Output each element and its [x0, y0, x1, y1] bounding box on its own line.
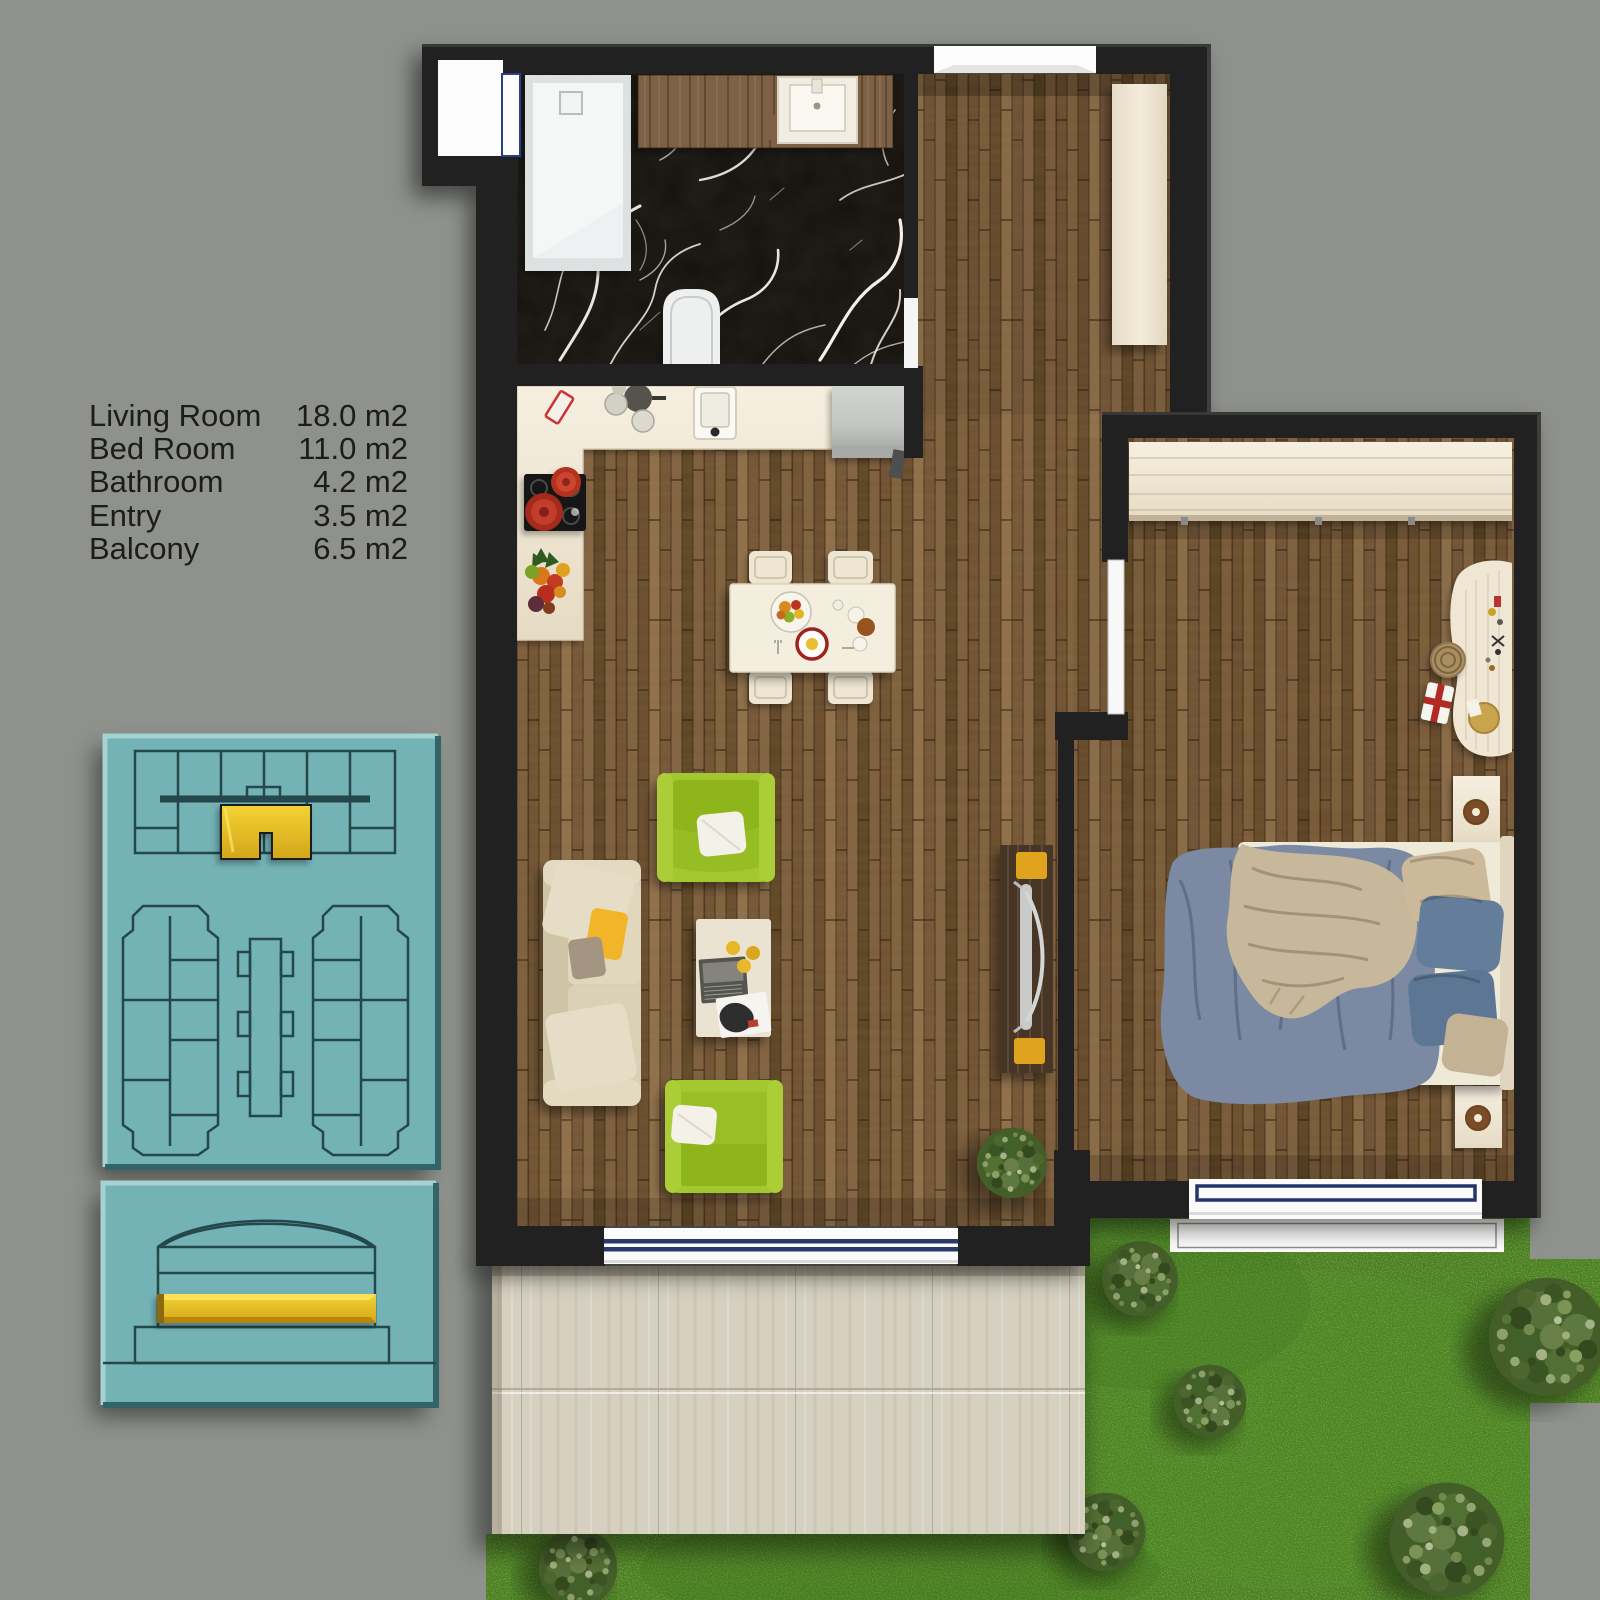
svg-text:18.0 m2: 18.0 m2	[296, 398, 408, 433]
svg-text:Living Room: Living Room	[89, 398, 261, 433]
svg-text:11.0 m2: 11.0 m2	[298, 431, 408, 466]
svg-text:Balcony: Balcony	[89, 531, 200, 566]
svg-text:3.5 m2: 3.5 m2	[313, 498, 408, 533]
svg-text:Entry: Entry	[89, 498, 162, 533]
svg-text:Bed Room: Bed Room	[89, 431, 235, 466]
svg-text:Bathroom: Bathroom	[89, 464, 223, 499]
svg-text:6.5 m2: 6.5 m2	[313, 531, 408, 566]
svg-text:4.2 m2: 4.2 m2	[313, 464, 408, 499]
